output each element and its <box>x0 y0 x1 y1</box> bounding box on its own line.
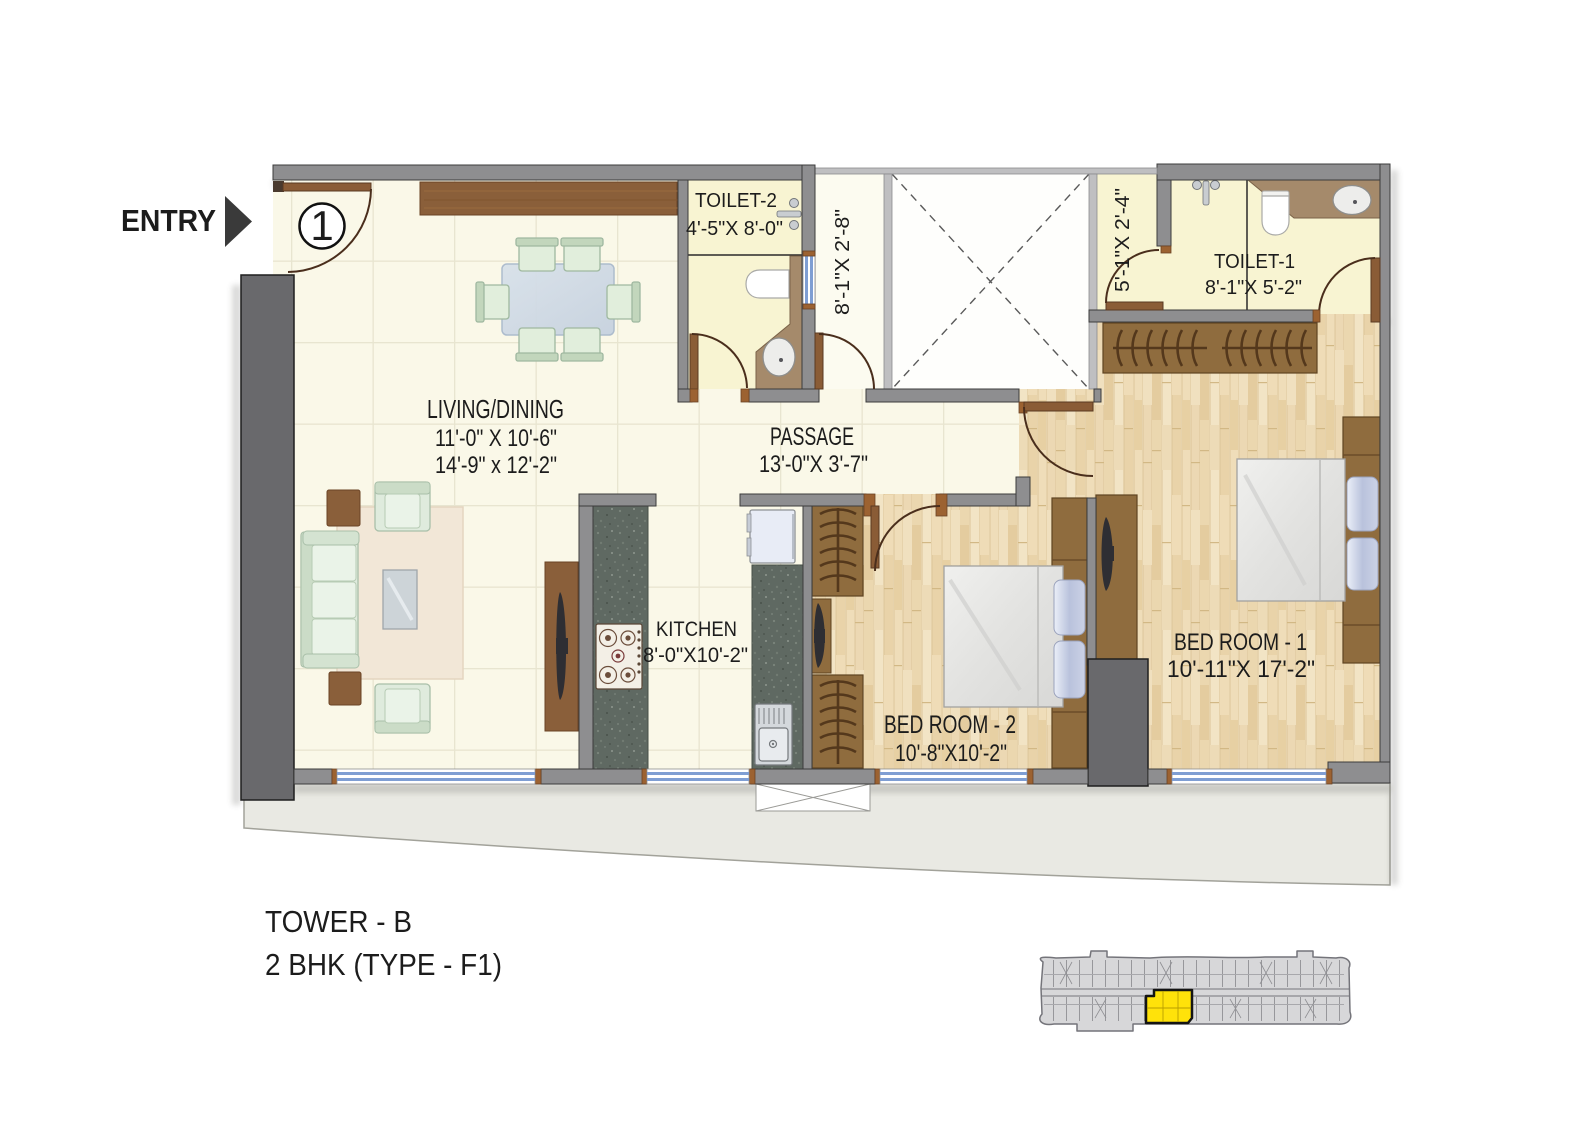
svg-text:TOILET-2: TOILET-2 <box>695 190 777 212</box>
svg-text:BED ROOM - 2: BED ROOM - 2 <box>884 711 1016 739</box>
svg-text:PASSAGE: PASSAGE <box>770 423 854 451</box>
svg-text:5'-1"X 2'-4": 5'-1"X 2'-4" <box>1112 188 1134 292</box>
svg-text:TOWER - B: TOWER - B <box>265 904 412 939</box>
svg-text:2 BHK (TYPE - F1): 2 BHK (TYPE - F1) <box>265 947 502 982</box>
svg-text:8'-1"X 2'-8": 8'-1"X 2'-8" <box>832 209 854 315</box>
svg-text:ENTRY: ENTRY <box>121 203 216 238</box>
svg-text:10'-11"X 17'-2": 10'-11"X 17'-2" <box>1167 656 1315 683</box>
svg-text:KITCHEN: KITCHEN <box>656 618 737 641</box>
svg-text:LIVING/DINING: LIVING/DINING <box>427 394 564 424</box>
svg-text:13'-0"X 3'-7": 13'-0"X 3'-7" <box>759 451 868 478</box>
svg-text:8'-1"X 5'-2": 8'-1"X 5'-2" <box>1205 277 1302 299</box>
svg-text:8'-0"X10'-2": 8'-0"X10'-2" <box>643 644 748 667</box>
svg-text:4'-5"X 8'-0": 4'-5"X 8'-0" <box>686 218 783 240</box>
svg-text:TOILET-1: TOILET-1 <box>1214 251 1295 273</box>
svg-text:1: 1 <box>310 202 333 249</box>
svg-text:BED ROOM - 1: BED ROOM - 1 <box>1174 629 1307 656</box>
svg-text:14'-9" x 12'-2": 14'-9" x 12'-2" <box>435 452 557 479</box>
svg-text:11'-0" X 10'-6": 11'-0" X 10'-6" <box>435 425 557 452</box>
svg-text:10'-8"X10'-2": 10'-8"X10'-2" <box>895 740 1007 767</box>
